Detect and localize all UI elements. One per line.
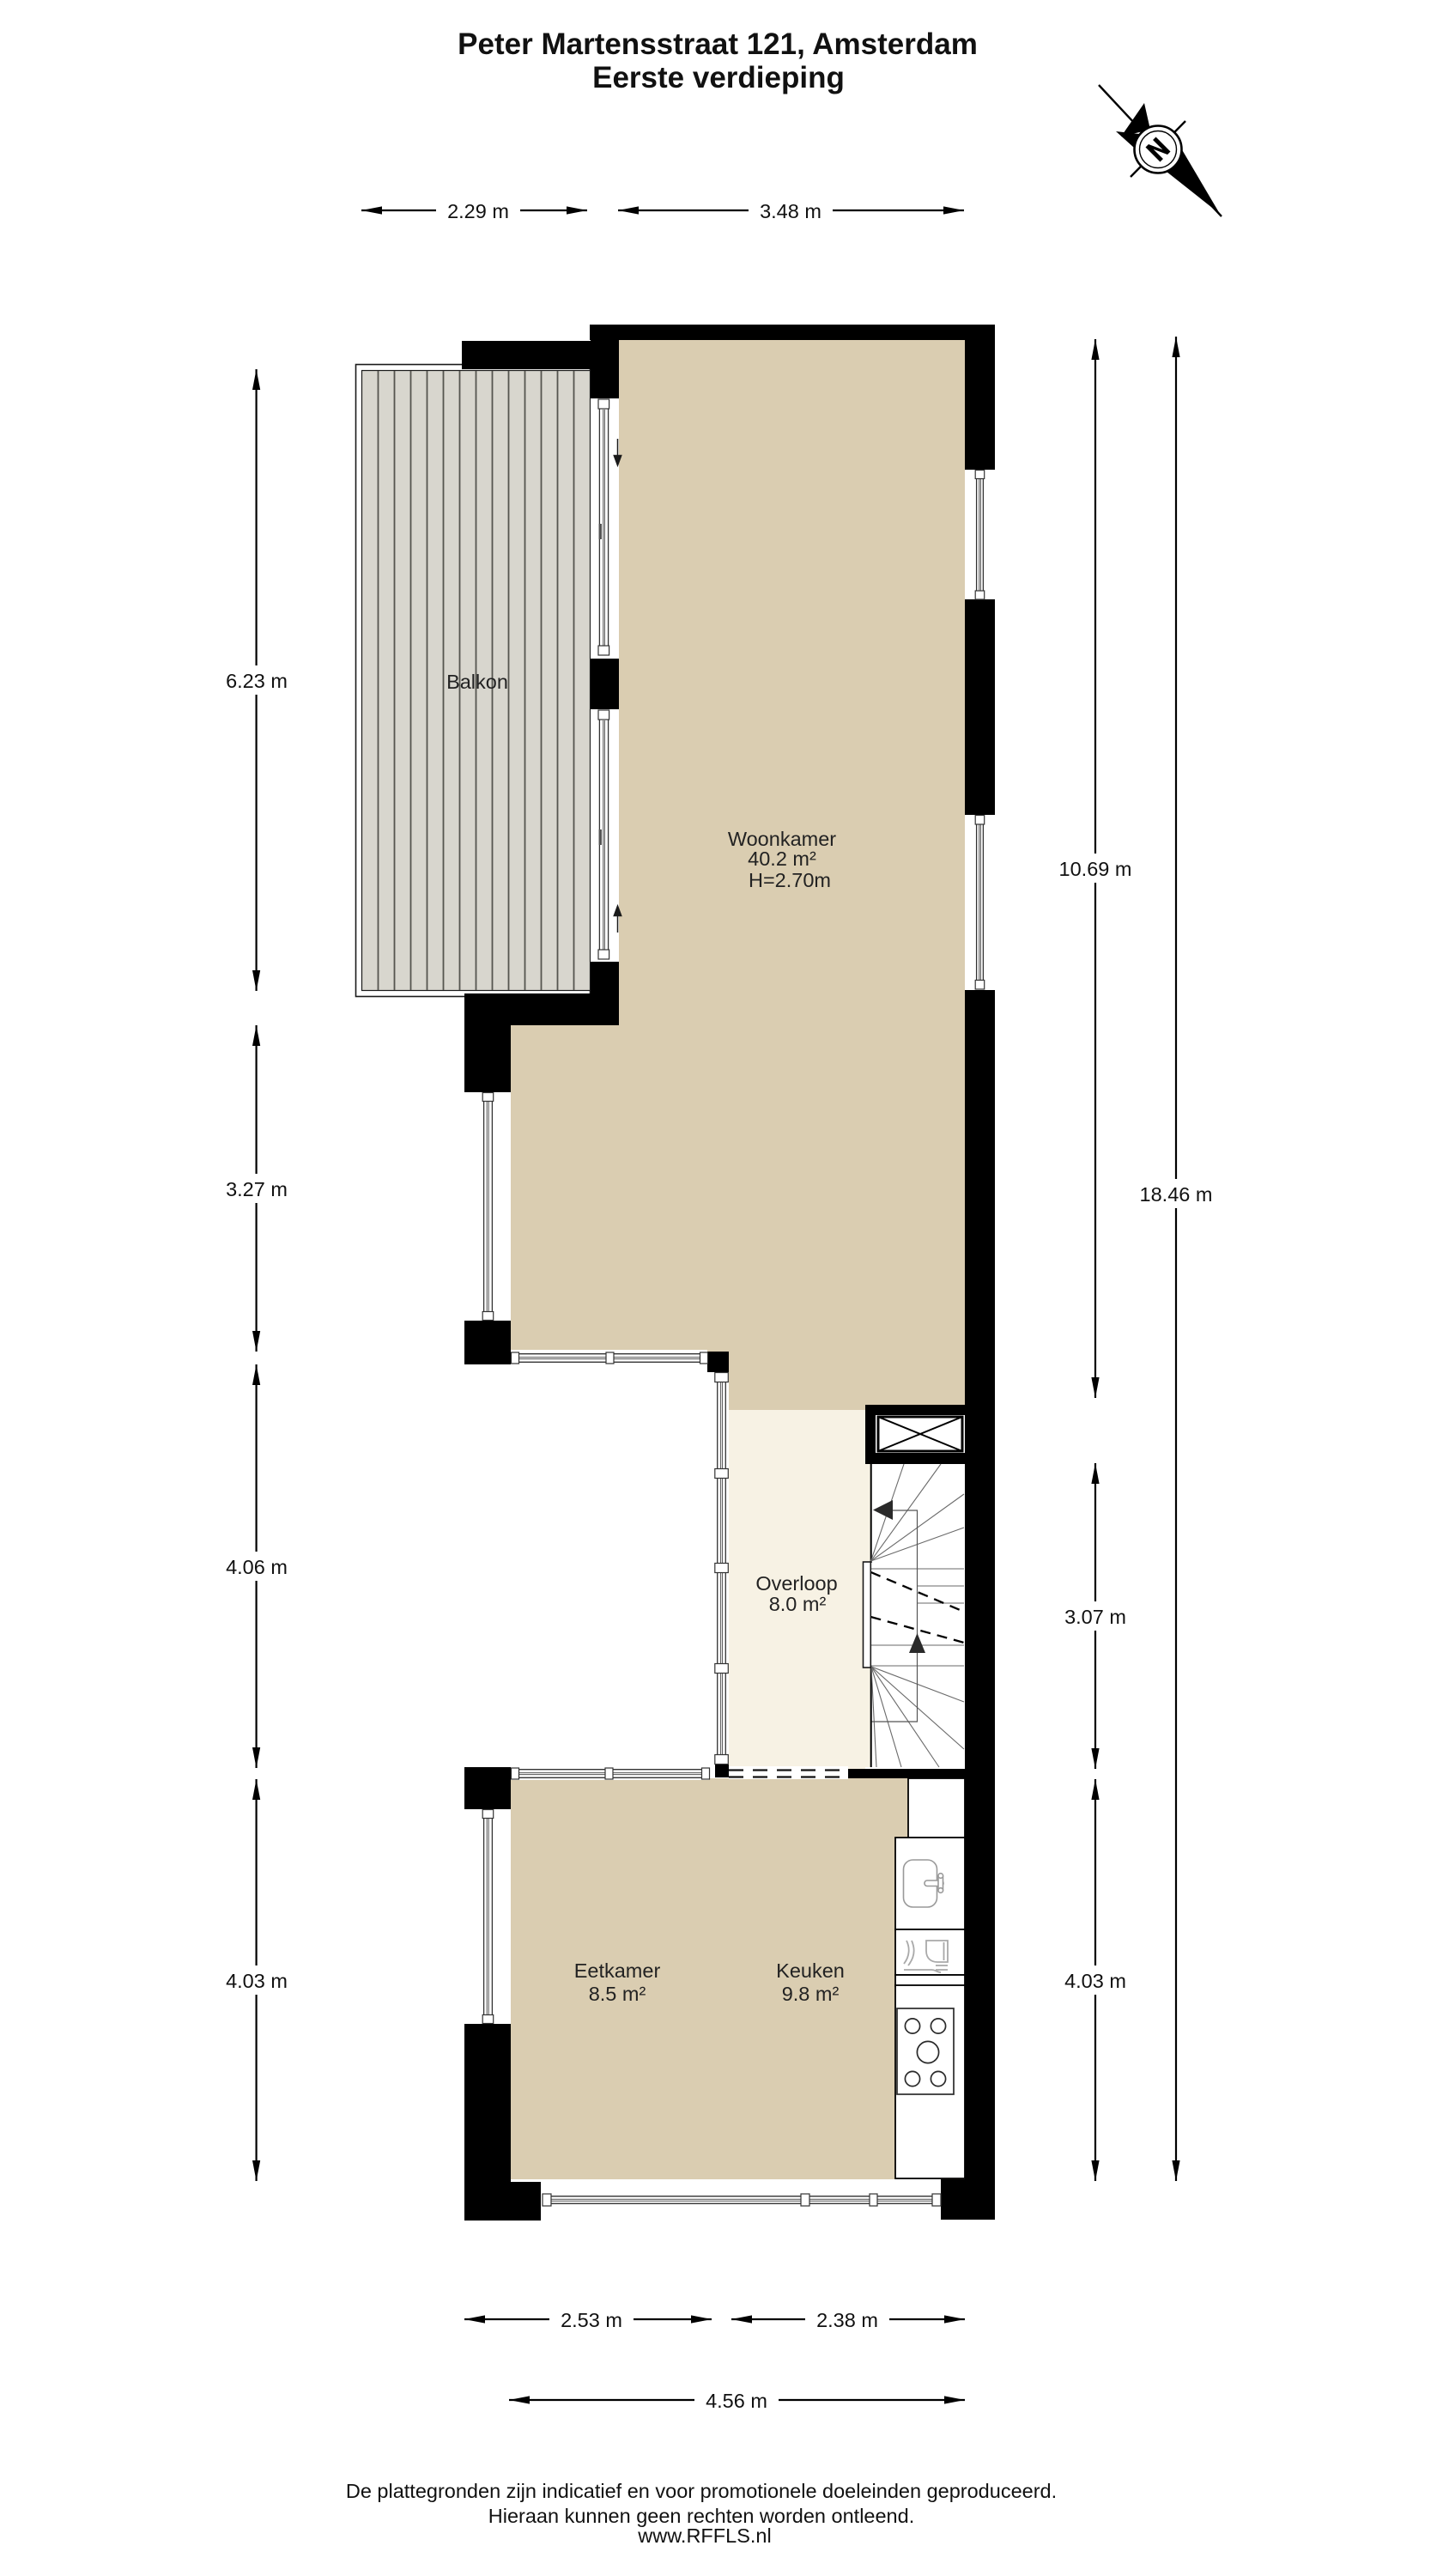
svg-text:www.RFFLS.nl: www.RFFLS.nl — [637, 2524, 771, 2547]
svg-text:10.69 m: 10.69 m — [1059, 858, 1132, 880]
svg-text:Eerste verdieping: Eerste verdieping — [592, 61, 845, 94]
svg-text:3.27 m: 3.27 m — [226, 1178, 288, 1200]
svg-text:40.2 m²: 40.2 m² — [748, 848, 816, 870]
svg-text:De plattegronden zijn indicati: De plattegronden zijn indicatief en voor… — [346, 2480, 1057, 2502]
svg-text:3.48 m: 3.48 m — [760, 200, 822, 222]
svg-text:Keuken: Keuken — [776, 1959, 845, 1982]
svg-text:4.56 m: 4.56 m — [706, 2390, 767, 2412]
svg-text:2.29 m: 2.29 m — [447, 200, 509, 222]
svg-text:Eetkamer: Eetkamer — [574, 1959, 661, 1982]
svg-text:6.23 m: 6.23 m — [226, 670, 288, 692]
svg-text:Overloop: Overloop — [755, 1572, 837, 1595]
svg-text:18.46 m: 18.46 m — [1140, 1183, 1213, 1206]
svg-text:2.38 m: 2.38 m — [816, 2309, 878, 2331]
svg-text:2.53 m: 2.53 m — [561, 2309, 622, 2331]
svg-text:8.0 m²: 8.0 m² — [769, 1593, 827, 1615]
svg-text:4.06 m: 4.06 m — [226, 1556, 288, 1578]
svg-text:4.03 m: 4.03 m — [226, 1970, 288, 1992]
svg-text:3.07 m: 3.07 m — [1064, 1606, 1126, 1628]
svg-text:8.5 m²: 8.5 m² — [589, 1983, 646, 2005]
svg-text:Balkon: Balkon — [446, 671, 508, 693]
svg-text:H=2.70m: H=2.70m — [749, 869, 831, 891]
svg-text:4.03 m: 4.03 m — [1064, 1970, 1126, 1992]
svg-text:9.8 m²: 9.8 m² — [782, 1983, 840, 2005]
svg-text:Peter Martensstraat 121, Amste: Peter Martensstraat 121, Amsterdam — [458, 27, 978, 61]
